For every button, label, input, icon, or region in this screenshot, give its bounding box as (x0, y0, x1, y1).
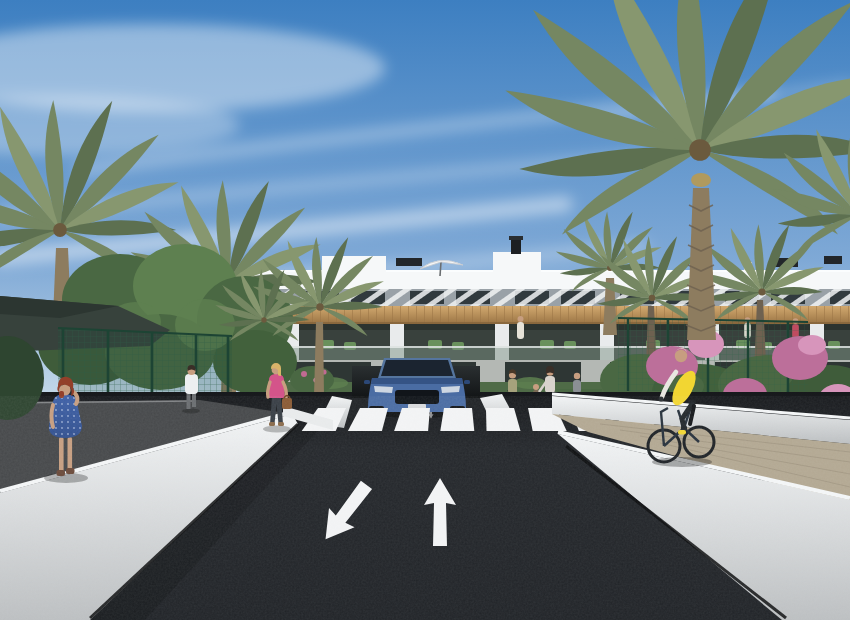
rooftop-chimney (511, 238, 521, 254)
render-image (0, 0, 850, 620)
asphalt-texture (0, 396, 850, 620)
solar-panel (396, 258, 422, 266)
sports-court-fence-left (58, 328, 232, 398)
scene (0, 0, 850, 620)
